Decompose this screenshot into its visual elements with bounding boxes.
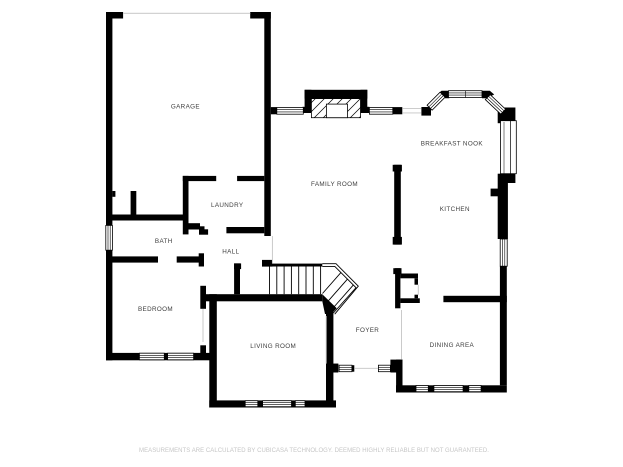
svg-text:LAUNDRY: LAUNDRY <box>211 202 244 209</box>
svg-text:GARAGE: GARAGE <box>171 104 200 111</box>
svg-text:FOYER: FOYER <box>356 327 380 334</box>
svg-text:MEASUREMENTS ARE CALCULATED BY: MEASUREMENTS ARE CALCULATED BY CUBICASA … <box>139 448 489 454</box>
svg-text:KITCHEN: KITCHEN <box>440 206 470 213</box>
svg-text:BEDROOM: BEDROOM <box>138 306 173 313</box>
svg-text:LIVING ROOM: LIVING ROOM <box>250 343 296 350</box>
svg-text:BATH: BATH <box>155 238 173 245</box>
svg-text:DINING AREA: DINING AREA <box>430 342 475 349</box>
svg-text:HALL: HALL <box>222 249 239 256</box>
svg-text:BREAKFAST NOOK: BREAKFAST NOOK <box>421 140 484 147</box>
svg-text:FAMILY ROOM: FAMILY ROOM <box>311 181 358 188</box>
